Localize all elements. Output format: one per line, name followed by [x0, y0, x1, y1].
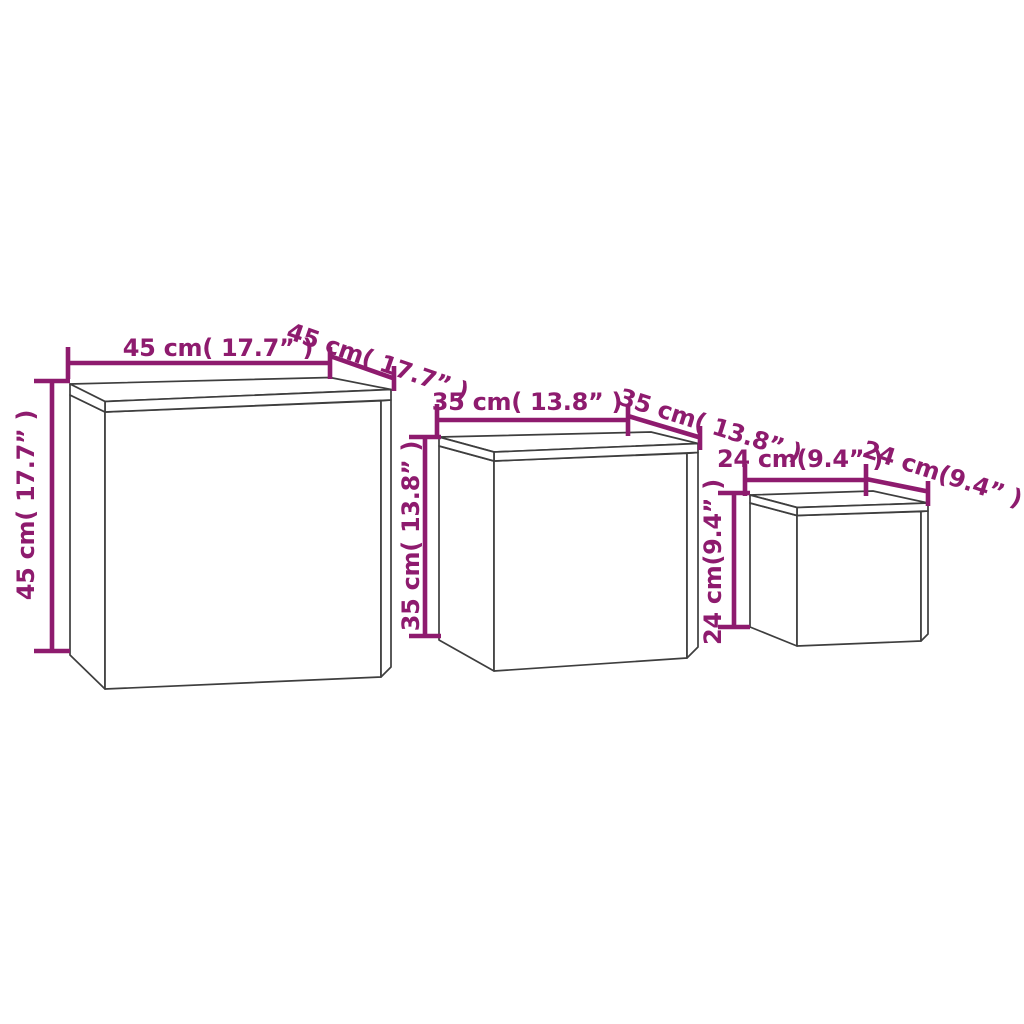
- table-small-width-label: 24 cm(9.4” ): [717, 445, 883, 473]
- table-large-drawing: [70, 378, 391, 690]
- table-medium-right-edge-face: [687, 453, 698, 659]
- nesting-tables-dimension-diagram: 45 cm( 17.7” ) 45 cm( 17.7” ) 45 cm( 17.…: [0, 0, 1024, 1024]
- table-small-height-label: 24 cm(9.4” ): [699, 479, 727, 645]
- table-large-front-face: [105, 401, 381, 689]
- table-medium-width-dimension: 35 cm( 13.8” ): [432, 388, 628, 436]
- table-medium-width-label: 35 cm( 13.8” ): [432, 388, 622, 416]
- table-medium-front-face: [494, 453, 687, 671]
- table-small-drawing: [750, 491, 928, 646]
- table-small-left-side-face: [750, 503, 797, 646]
- table-small-height-dimension: 24 cm(9.4” ): [699, 479, 750, 645]
- table-small-width-dimension: 24 cm(9.4” ): [717, 445, 883, 496]
- table-medium-left-side-face: [439, 446, 494, 671]
- table-large-right-edge-face: [381, 400, 391, 677]
- table-large-left-side-face: [70, 395, 105, 689]
- table-large-height-label: 45 cm( 17.7” ): [12, 410, 40, 600]
- table-large-height-dimension: 45 cm( 17.7” ): [12, 381, 70, 651]
- dimension-diagram-canvas: 45 cm( 17.7” ) 45 cm( 17.7” ) 45 cm( 17.…: [0, 0, 1024, 1024]
- table-medium-height-dimension: 35 cm( 13.8” ): [397, 437, 441, 636]
- table-medium-height-label: 35 cm( 13.8” ): [397, 441, 425, 631]
- table-small: 24 cm(9.4” ) 24 cm(9.4” ) 24 cm(9.4” ): [699, 435, 1024, 646]
- table-small-right-edge-face: [921, 511, 928, 641]
- table-small-front-face: [797, 512, 921, 647]
- table-medium-drawing: [439, 432, 698, 671]
